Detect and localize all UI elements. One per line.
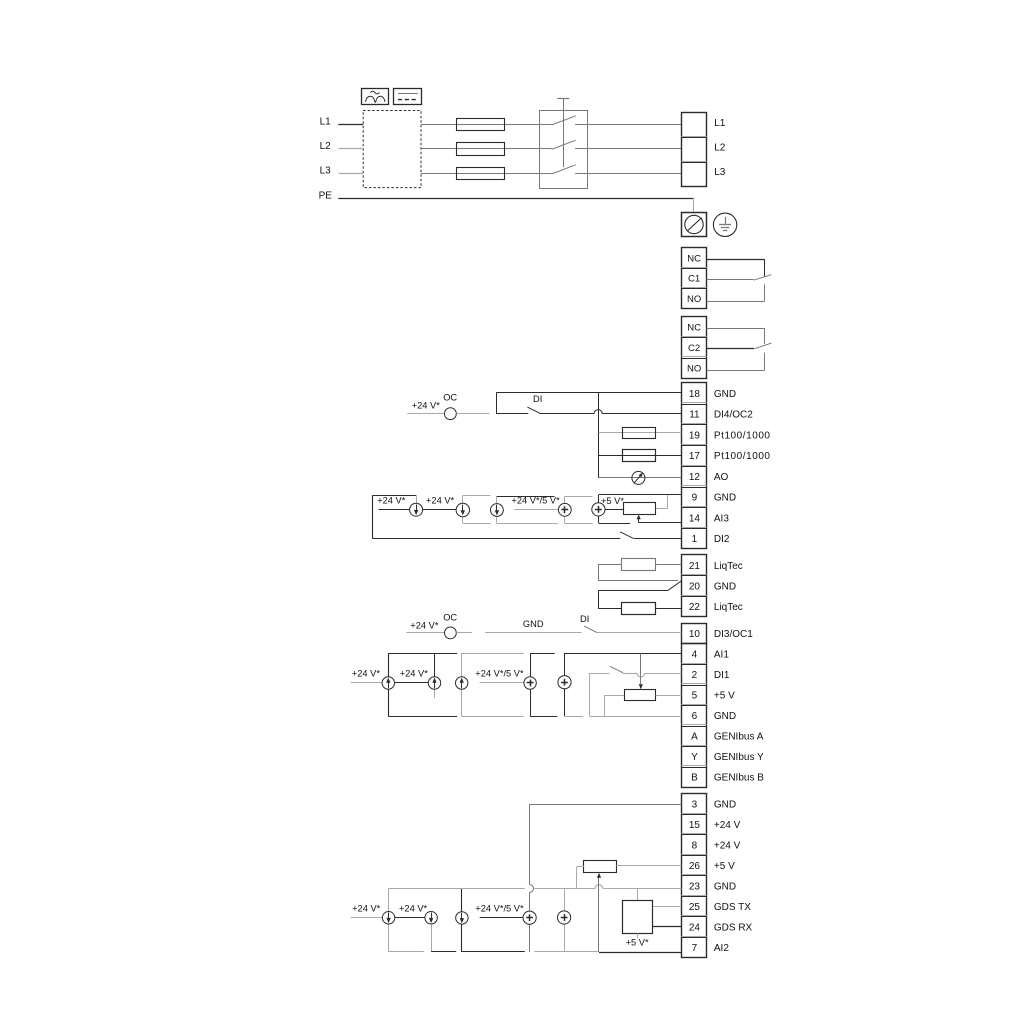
svg-text:19: 19 [689, 431, 701, 442]
svg-text:GND: GND [714, 581, 736, 592]
svg-text:21: 21 [689, 561, 701, 572]
svg-text:C2: C2 [688, 343, 700, 354]
svg-text:25: 25 [689, 902, 701, 913]
svg-text:DI4/OC2: DI4/OC2 [714, 410, 753, 421]
svg-text:L2: L2 [320, 141, 332, 152]
svg-text:DI: DI [580, 614, 589, 624]
svg-text:GENIbus Y: GENIbus Y [714, 752, 764, 763]
svg-text:5: 5 [692, 691, 698, 702]
svg-text:NO: NO [687, 294, 701, 305]
svg-text:GENIbus A: GENIbus A [714, 732, 764, 743]
svg-text:NC: NC [687, 323, 701, 334]
svg-text:GND: GND [714, 389, 736, 400]
svg-text:L3: L3 [320, 166, 332, 177]
svg-text:OC: OC [443, 392, 457, 402]
svg-text:NC: NC [687, 253, 701, 264]
svg-text:+24 V*: +24 V* [352, 903, 381, 913]
svg-text:B: B [691, 773, 698, 784]
svg-text:4: 4 [692, 650, 698, 661]
svg-text:AI1: AI1 [714, 650, 729, 661]
svg-text:L1: L1 [320, 117, 332, 128]
svg-text:L1: L1 [714, 118, 726, 129]
svg-text:2: 2 [692, 670, 698, 681]
svg-text:+24 V*/5 V*: +24 V*/5 V* [511, 496, 560, 506]
svg-text:+5 V*: +5 V* [626, 937, 649, 947]
svg-text:+5 V: +5 V [714, 861, 735, 872]
svg-text:8: 8 [692, 840, 698, 851]
svg-text:+24 V*: +24 V* [410, 620, 439, 630]
svg-text:GND: GND [714, 493, 736, 504]
svg-text:+24 V*: +24 V* [399, 903, 428, 913]
svg-text:9: 9 [692, 493, 698, 504]
svg-text:+24 V*: +24 V* [377, 496, 406, 506]
svg-text:+24 V*: +24 V* [412, 400, 441, 410]
svg-text:26: 26 [689, 861, 701, 872]
svg-text:DI2: DI2 [714, 534, 730, 545]
svg-text:+24 V: +24 V [714, 820, 741, 831]
svg-text:Pt100/1000: Pt100/1000 [714, 451, 771, 462]
svg-text:+5 V*: +5 V* [601, 496, 624, 506]
svg-text:+5 V: +5 V [714, 691, 735, 702]
svg-text:10: 10 [689, 629, 701, 640]
svg-text:AO: AO [714, 472, 729, 483]
svg-text:22: 22 [689, 602, 701, 613]
svg-text:AI2: AI2 [714, 943, 729, 954]
svg-text:17: 17 [689, 451, 701, 462]
svg-text:L3: L3 [714, 167, 726, 178]
svg-text:A: A [691, 732, 698, 743]
svg-text:LiqTec: LiqTec [714, 561, 743, 572]
svg-text:+24 V*: +24 V* [352, 668, 381, 678]
svg-text:AI3: AI3 [714, 514, 729, 525]
svg-text:GDS TX: GDS TX [714, 902, 751, 913]
svg-text:23: 23 [689, 881, 701, 892]
svg-text:NO: NO [687, 364, 701, 375]
svg-text:12: 12 [689, 472, 701, 483]
svg-text:14: 14 [689, 514, 701, 525]
svg-text:+24 V*: +24 V* [400, 668, 429, 678]
svg-text:+24 V: +24 V [714, 840, 741, 851]
svg-text:GND: GND [714, 881, 736, 892]
svg-text:6: 6 [692, 711, 698, 722]
svg-text:GND: GND [714, 711, 736, 722]
svg-text:11: 11 [689, 410, 700, 421]
svg-text:3: 3 [692, 799, 698, 810]
svg-text:PE: PE [319, 190, 333, 201]
svg-text:GDS RX: GDS RX [714, 922, 753, 933]
svg-text:L2: L2 [714, 143, 726, 154]
svg-text:DI1: DI1 [714, 670, 730, 681]
svg-text:Y: Y [691, 752, 698, 763]
svg-text:Pt100/1000: Pt100/1000 [714, 431, 771, 442]
svg-text:20: 20 [689, 581, 701, 592]
svg-text:7: 7 [692, 943, 698, 954]
svg-text:24: 24 [689, 922, 701, 933]
svg-text:18: 18 [689, 389, 701, 400]
svg-text:DI3/OC1: DI3/OC1 [714, 629, 753, 640]
svg-text:15: 15 [689, 820, 701, 831]
svg-text:C1: C1 [688, 274, 700, 285]
svg-text:GENIbus B: GENIbus B [714, 773, 764, 784]
svg-text:+24 V*/5 V*: +24 V*/5 V* [475, 903, 524, 913]
svg-text:+24 V*: +24 V* [426, 496, 455, 506]
svg-text:DI: DI [533, 394, 542, 404]
svg-text:+24 V*/5 V*: +24 V*/5 V* [475, 668, 524, 678]
svg-text:LiqTec: LiqTec [714, 602, 743, 613]
svg-text:1: 1 [692, 534, 698, 545]
svg-text:OC: OC [443, 612, 457, 622]
svg-text:GND: GND [714, 799, 736, 810]
svg-text:GND: GND [523, 619, 544, 629]
